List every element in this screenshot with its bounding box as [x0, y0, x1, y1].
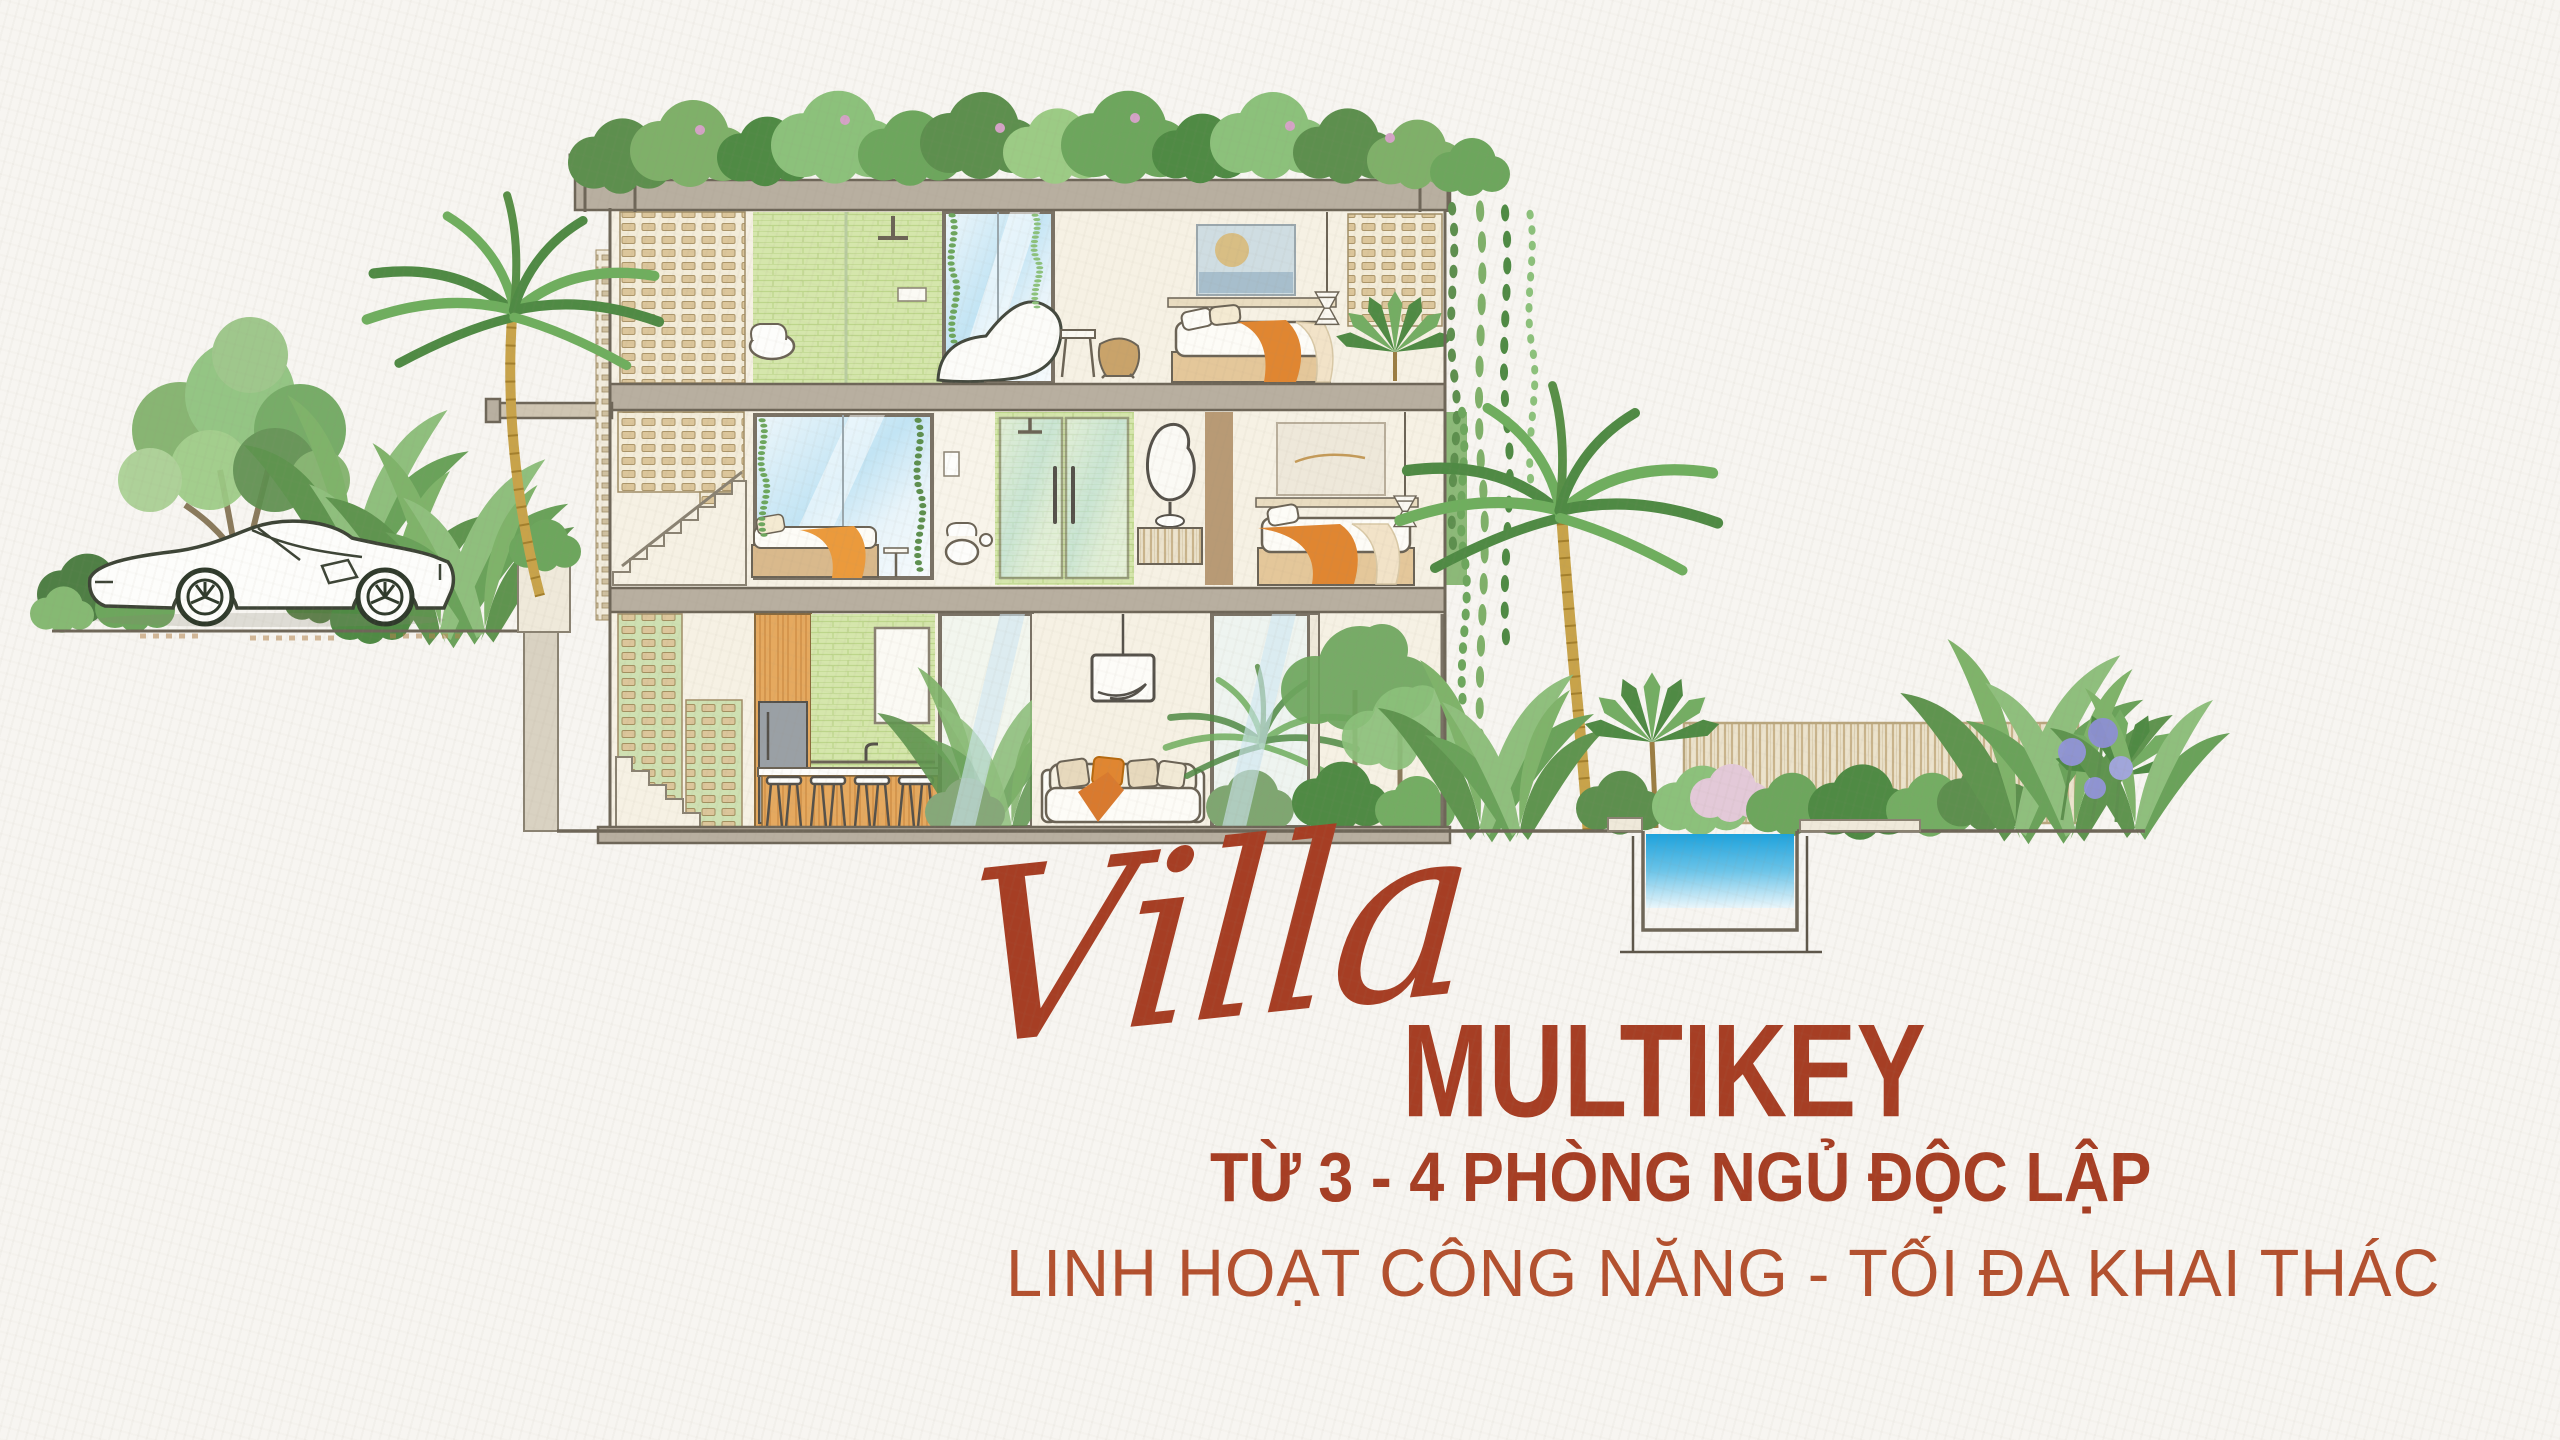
villa-illustration [0, 0, 2560, 1440]
middle-floor [613, 412, 1467, 585]
building-section [486, 142, 1467, 843]
pool [1620, 831, 1822, 952]
villa-tagline: LINH HOẠT CÔNG NĂNG - TỐI ĐA KHAI THÁC [1006, 1240, 2440, 1307]
villa-script-word: Villa [952, 792, 1449, 1126]
villa-subtitle: TỪ 3 - 4 PHÒNG NGỦ ĐỘC LẬP [1210, 1142, 2151, 1212]
poster: Villa MULTIKEY TỪ 3 - 4 PHÒNG NGỦ ĐỘC LẬ… [0, 0, 2560, 1440]
villa-title: MULTIKEY [1402, 1004, 1926, 1137]
